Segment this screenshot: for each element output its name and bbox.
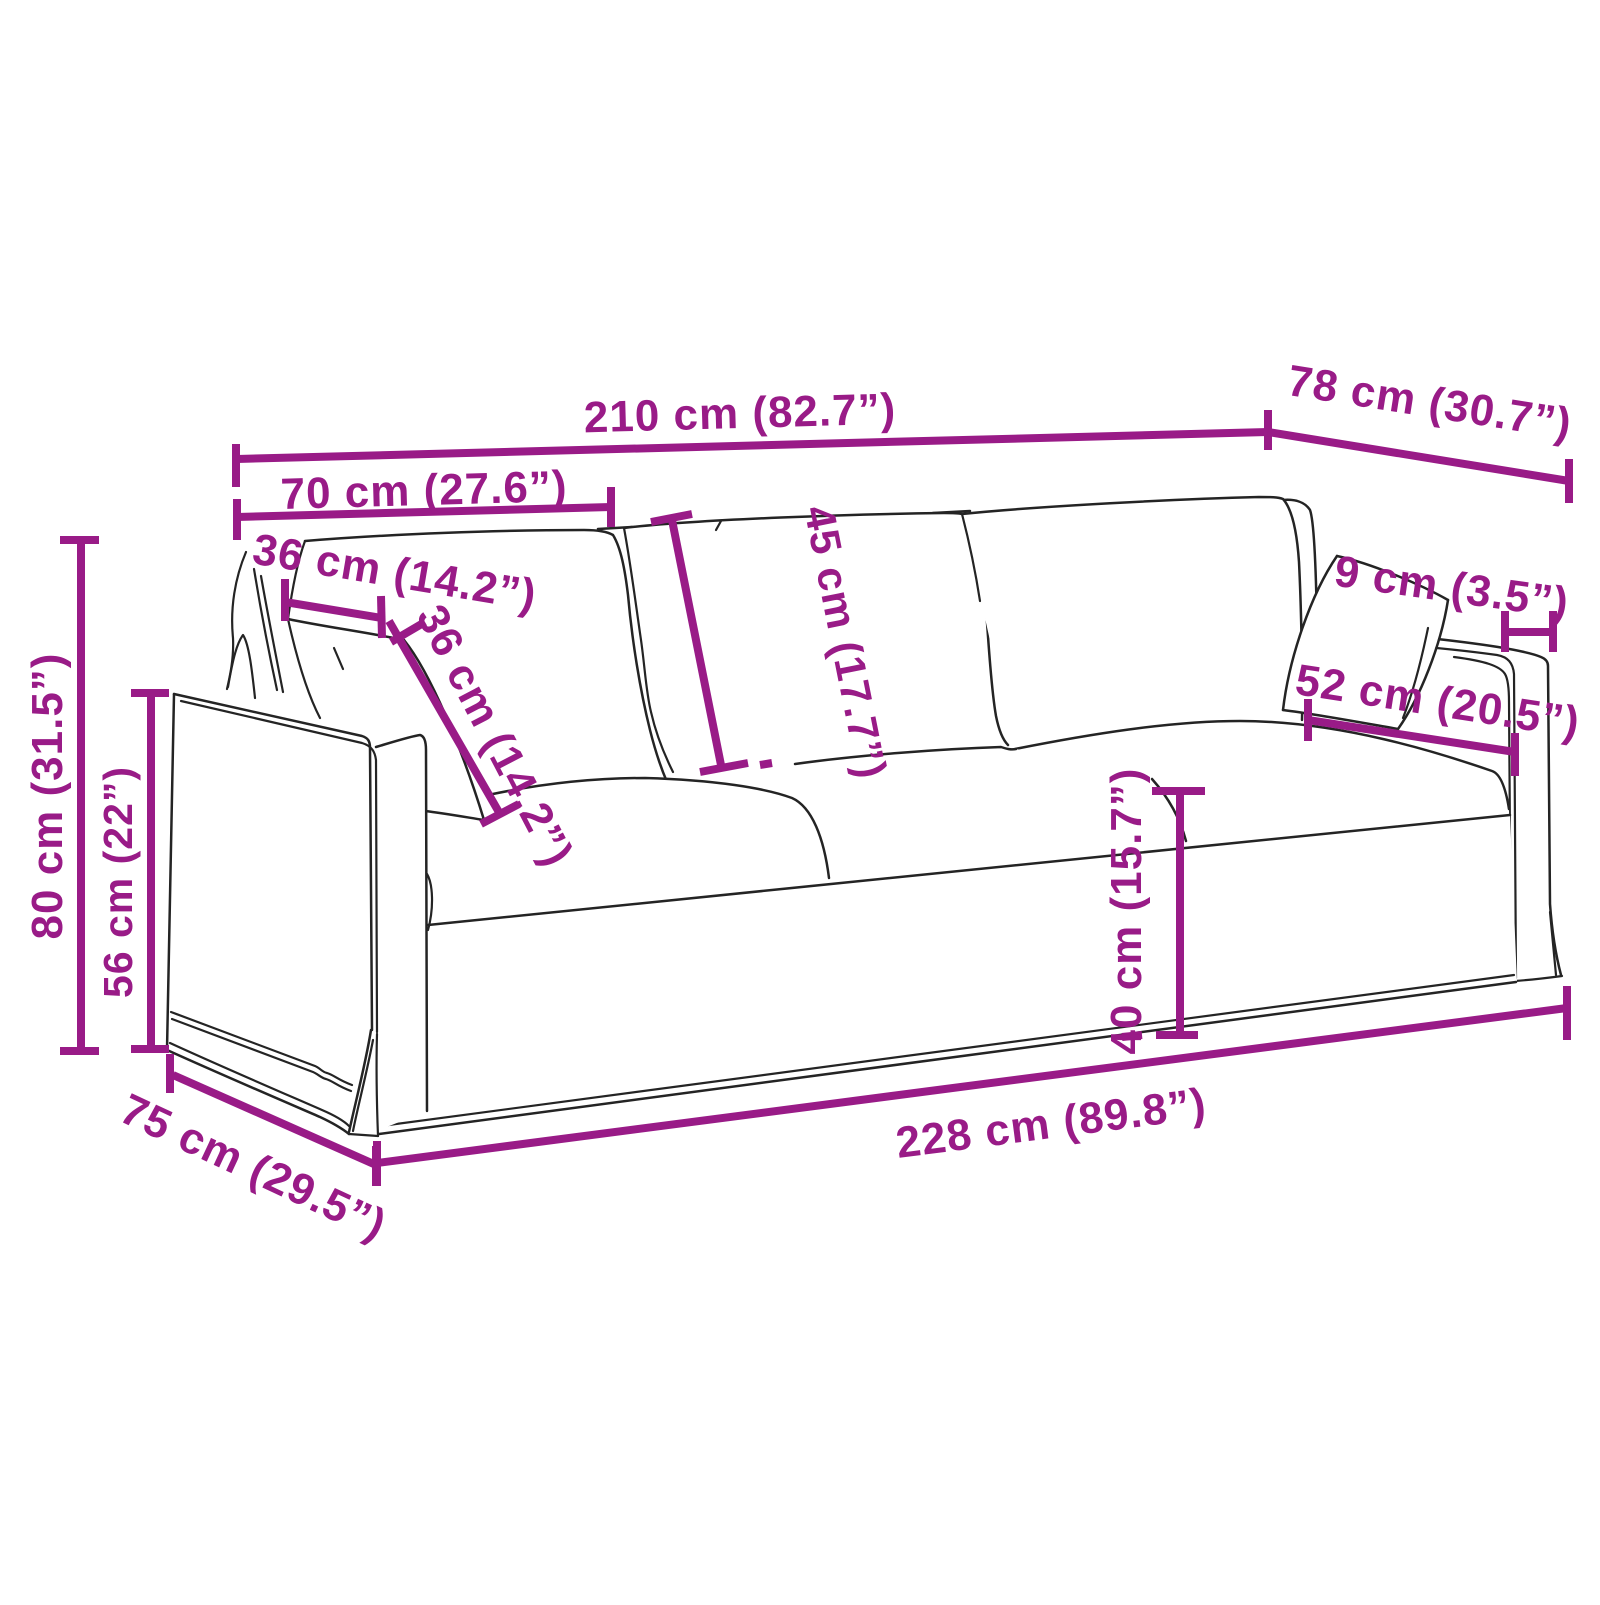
- svg-text:70 cm (27.6”): 70 cm (27.6”): [280, 462, 568, 519]
- svg-text:80 cm (31.5”): 80 cm (31.5”): [23, 653, 72, 940]
- svg-text:56 cm (22”): 56 cm (22”): [95, 766, 141, 998]
- svg-text:40 cm (15.7”): 40 cm (15.7”): [1102, 768, 1151, 1055]
- svg-text:210 cm (82.7”): 210 cm (82.7”): [583, 385, 897, 443]
